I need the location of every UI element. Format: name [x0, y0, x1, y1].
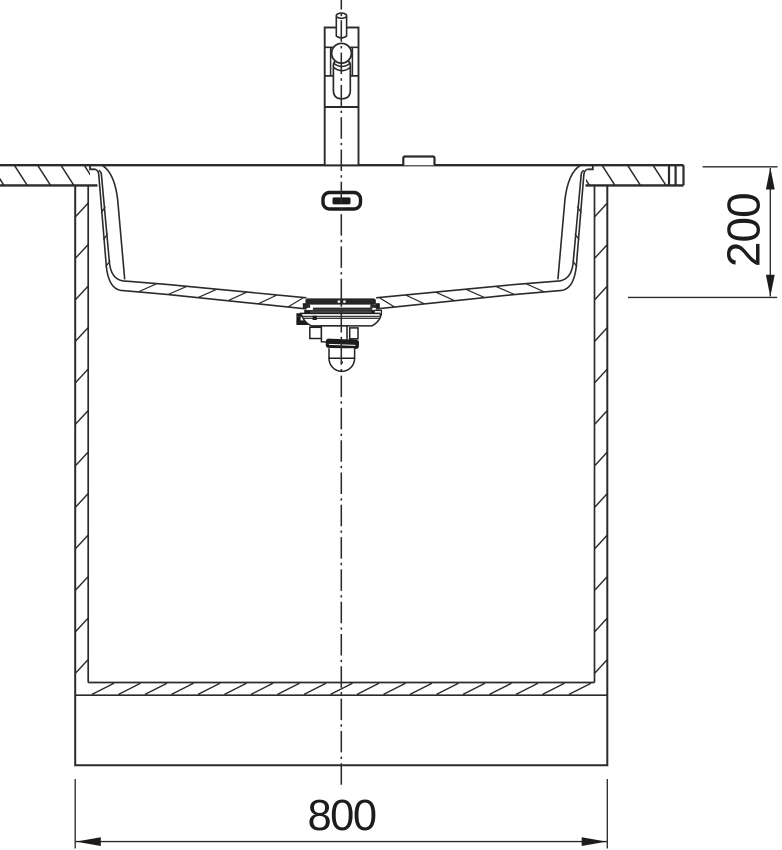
svg-text:200: 200 [718, 193, 770, 267]
svg-text:800: 800 [307, 792, 375, 840]
